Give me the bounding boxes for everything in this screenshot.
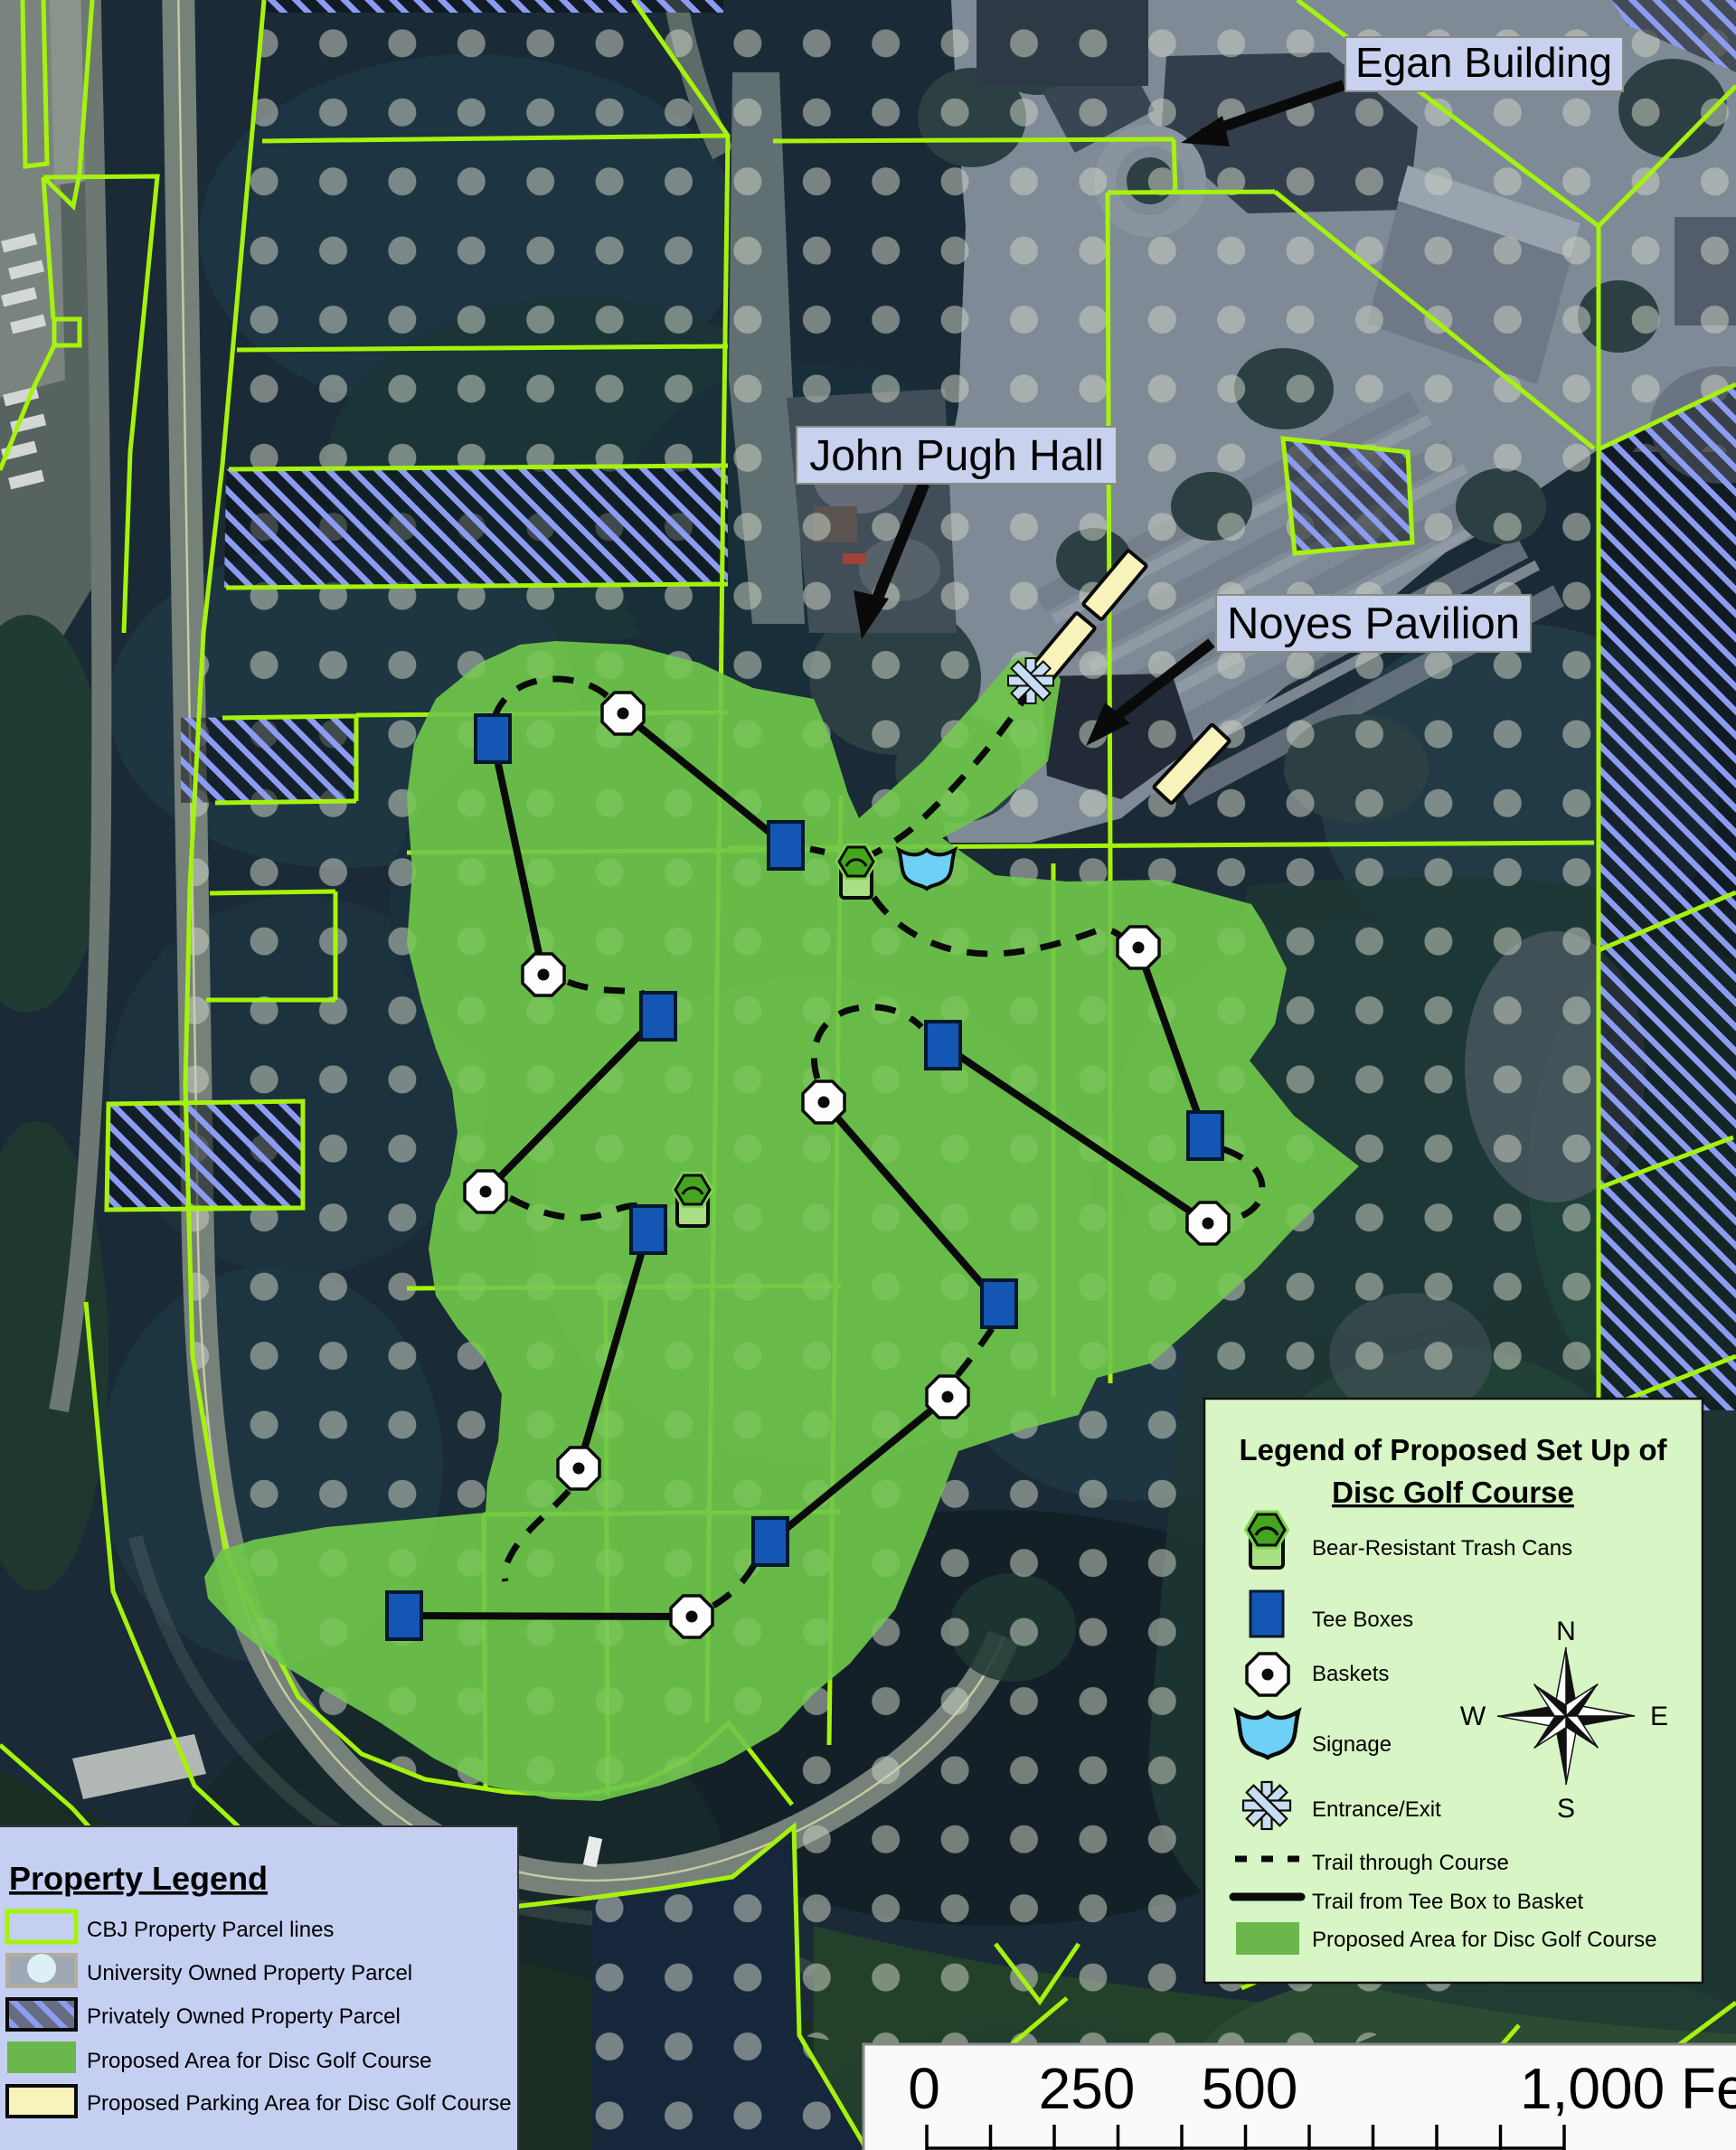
- svg-text:Property Legend: Property Legend: [9, 1860, 268, 1897]
- svg-text:Trail through Course: Trail through Course: [1312, 1851, 1509, 1875]
- svg-text:W: W: [1460, 1702, 1486, 1731]
- svg-text:Signage: Signage: [1312, 1732, 1392, 1757]
- svg-text:John Pugh Hall: John Pugh Hall: [809, 432, 1104, 480]
- svg-text:Tee Boxes: Tee Boxes: [1312, 1608, 1413, 1632]
- svg-text:CBJ Property Parcel lines: CBJ Property Parcel lines: [87, 1918, 334, 1942]
- svg-text:250: 250: [1039, 2056, 1136, 2121]
- svg-text:University Owned Property Parc: University Owned Property Parcel: [87, 1961, 412, 1985]
- svg-text:Legend of Proposed Set Up of: Legend of Proposed Set Up of: [1239, 1433, 1667, 1466]
- svg-text:Egan Building: Egan Building: [1355, 39, 1612, 86]
- svg-text:Proposed Area for Disc Golf Co: Proposed Area for Disc Golf Course: [87, 2049, 432, 2073]
- svg-text:Entrance/Exit: Entrance/Exit: [1312, 1797, 1441, 1822]
- svg-text:E: E: [1650, 1702, 1668, 1731]
- svg-text:1,000 Feet: 1,000 Feet: [1520, 2056, 1736, 2121]
- svg-text:Baskets: Baskets: [1312, 1662, 1389, 1686]
- svg-text:Disc Golf Course: Disc Golf Course: [1332, 1476, 1574, 1509]
- svg-text:Noyes Pavilion: Noyes Pavilion: [1227, 599, 1520, 648]
- svg-text:Bear-Resistant Trash Cans: Bear-Resistant Trash Cans: [1312, 1536, 1572, 1561]
- svg-text:Proposed Parking Area for Disc: Proposed Parking Area for Disc Golf Cour…: [87, 2091, 512, 2116]
- svg-text:Trail from Tee Box to Basket: Trail from Tee Box to Basket: [1312, 1890, 1583, 1914]
- svg-text:N: N: [1556, 1617, 1576, 1646]
- svg-text:Privately Owned Property Parce: Privately Owned Property Parcel: [87, 2004, 401, 2029]
- svg-text:S: S: [1557, 1794, 1575, 1824]
- svg-text:Proposed Area for Disc Golf Co: Proposed Area for Disc Golf Course: [1312, 1928, 1657, 1952]
- svg-text:0: 0: [908, 2056, 940, 2121]
- svg-text:500: 500: [1202, 2056, 1298, 2121]
